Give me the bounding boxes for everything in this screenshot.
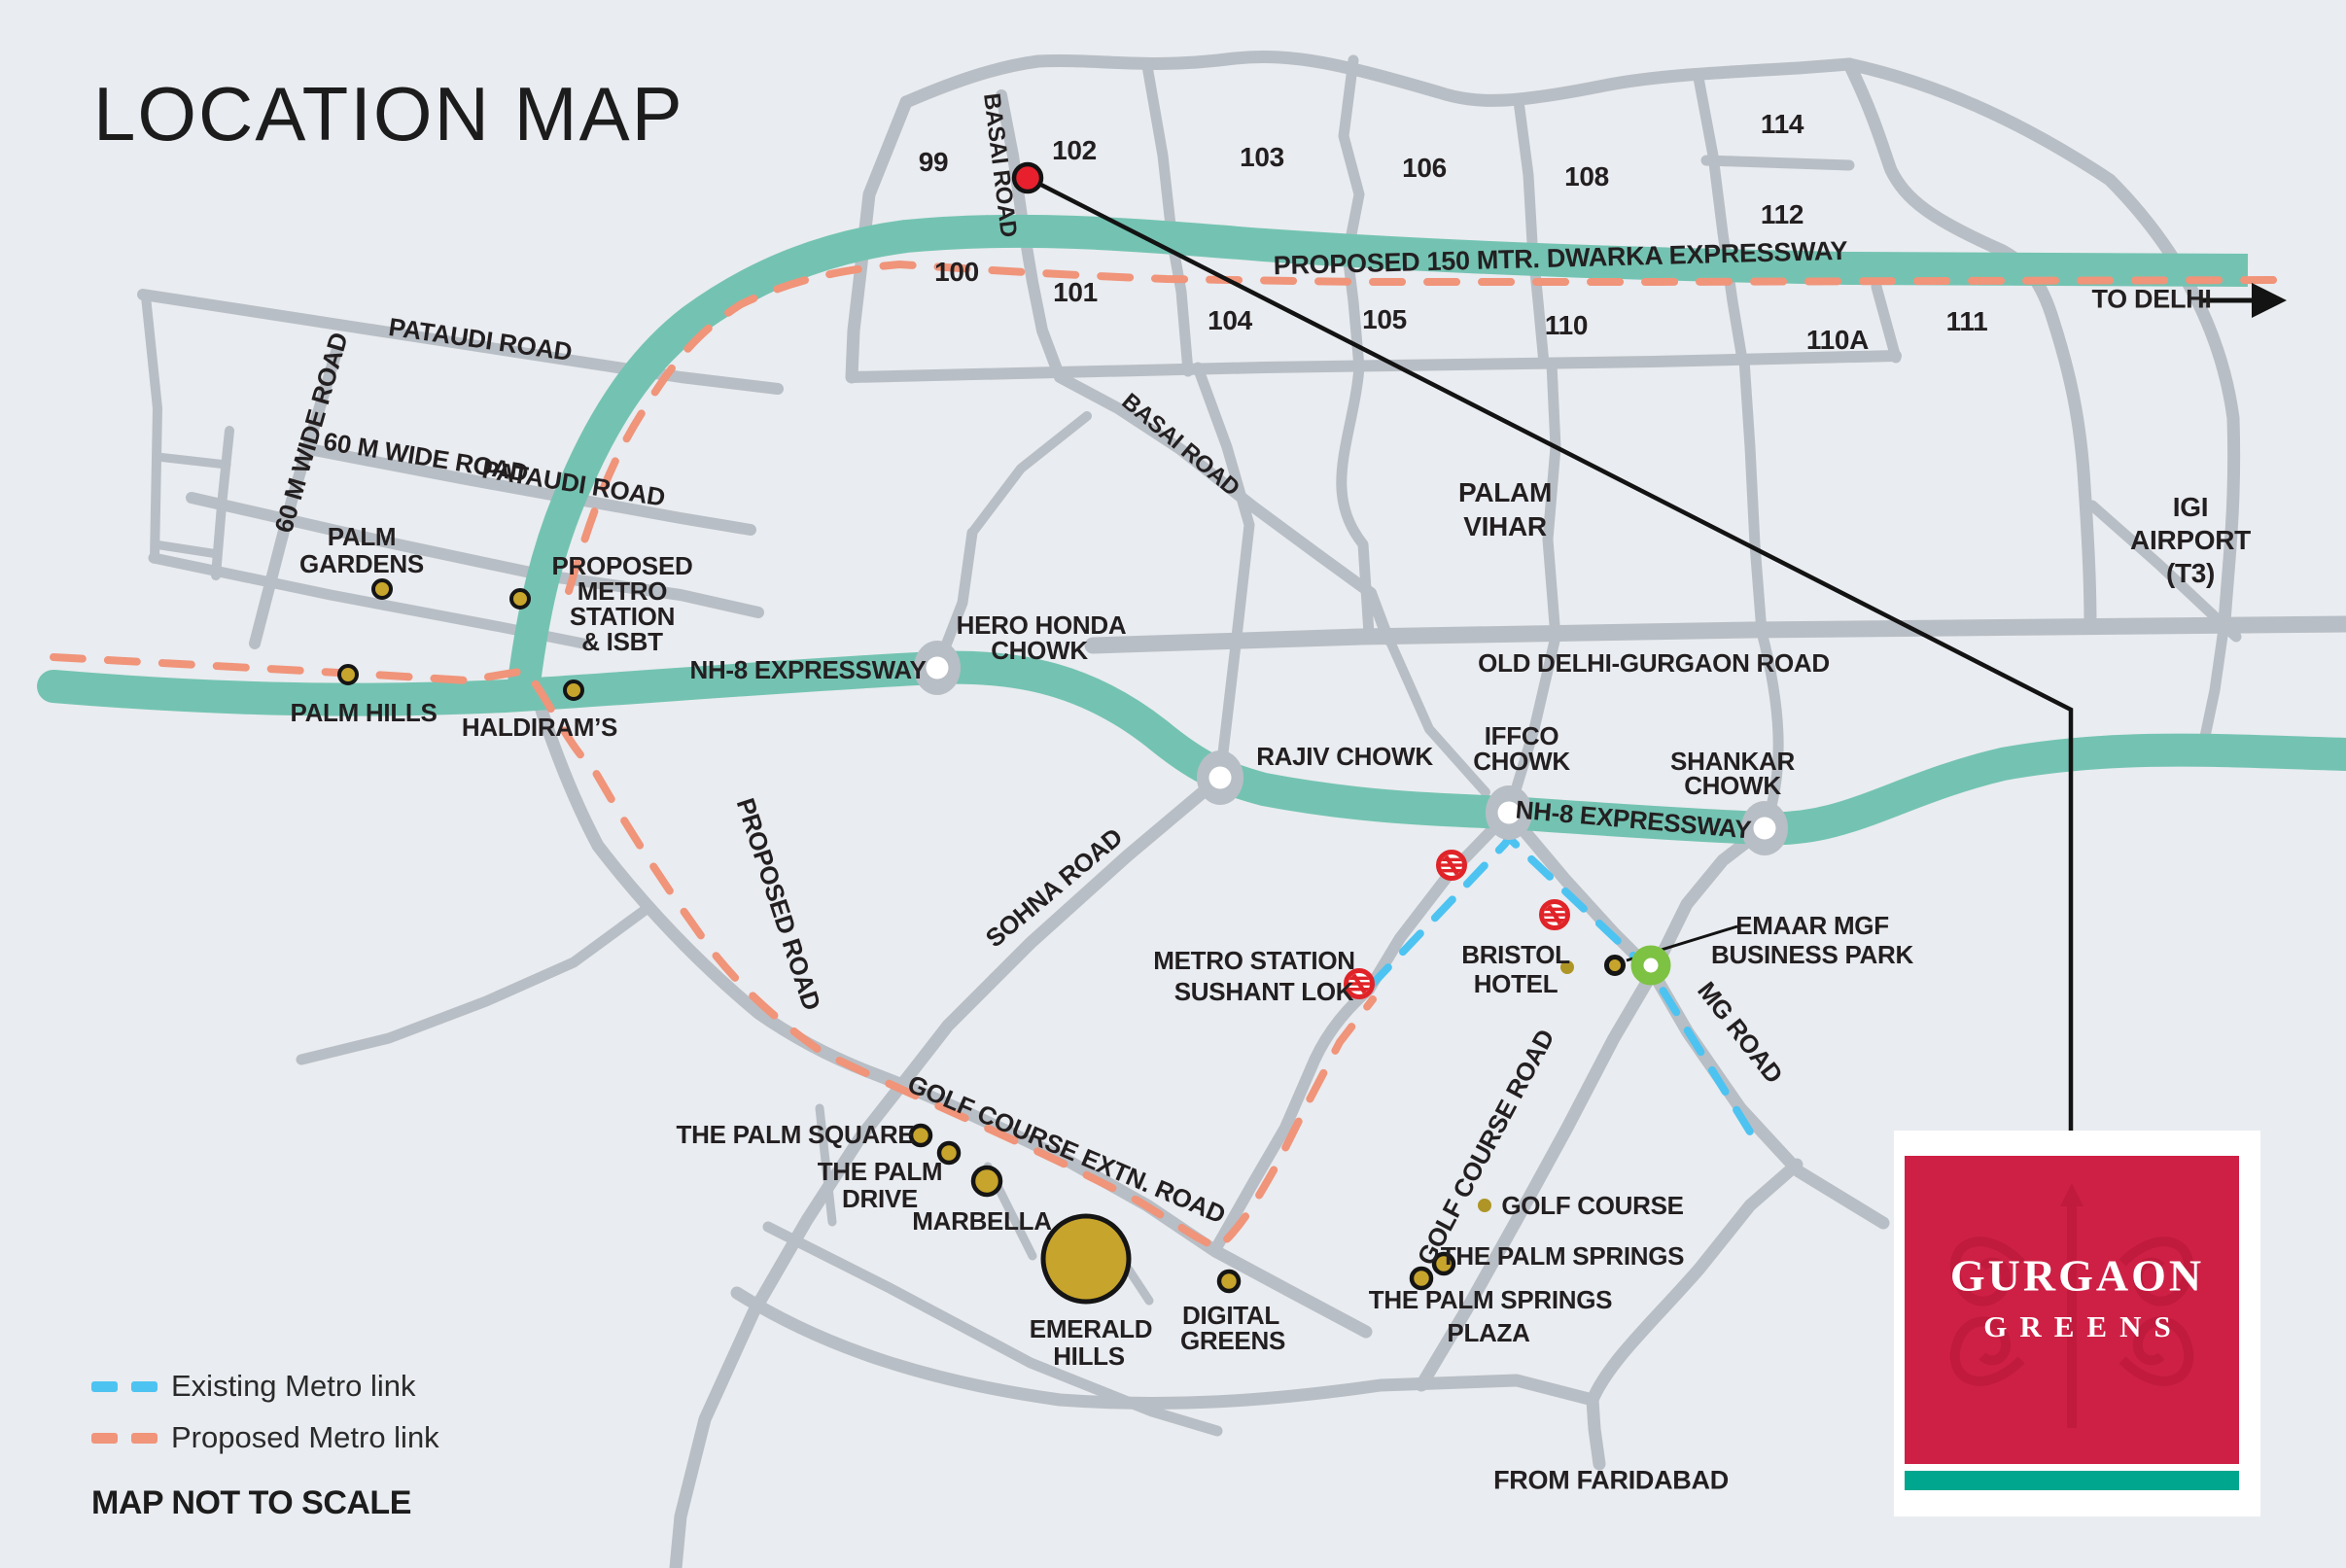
digital-greens-label-2: GREENS — [1180, 1328, 1285, 1353]
proposed-metro-dash-icon — [131, 1433, 158, 1444]
nh8-expressway-path — [53, 668, 2346, 829]
palm-drive-label-1: THE PALM — [818, 1159, 943, 1184]
sector-103: 103 — [1240, 144, 1284, 171]
palm-springs-label: THE PALM SPRINGS — [1441, 1243, 1684, 1269]
location-map: LOCATION MAP 99 100 101 102 103 104 105 … — [0, 0, 2346, 1568]
igi-airport-label-2: AIRPORT — [2130, 527, 2251, 554]
digital-greens-dot — [1219, 1272, 1239, 1291]
sector-101: 101 — [1053, 279, 1098, 306]
emaar-business-park-marker — [1607, 958, 1624, 974]
iffco-chowk-label-2: CHOWK — [1473, 749, 1570, 774]
rajiv-chowk-label: RAJIV CHOWK — [1256, 744, 1433, 769]
existing-metro-dash-icon — [91, 1381, 118, 1392]
mg-road-path — [1509, 813, 1883, 1223]
palam-vihar-label-1: PALAM — [1458, 479, 1552, 506]
metro-sushant-label-2: SUSHANT LOK — [1174, 979, 1353, 1004]
page-title: LOCATION MAP — [93, 76, 684, 152]
metro-isbt-label-4: & ISBT — [581, 629, 662, 654]
haldirams-label: HALDIRAM’S — [462, 714, 617, 740]
sector-102: 102 — [1052, 137, 1097, 164]
proposed-metro-dash-icon — [91, 1433, 118, 1444]
logo-text-line2: GREENS — [1971, 1309, 2183, 1344]
palm-drive-label-2: DRIVE — [842, 1186, 918, 1211]
to-delhi-label: TO DELHI — [2091, 287, 2211, 313]
sector-110: 110 — [1545, 312, 1588, 339]
sector-110a: 110A — [1806, 327, 1869, 354]
metro-isbt-label-3: STATION — [570, 604, 675, 629]
emerald-hills-label-2: HILLS — [1053, 1343, 1125, 1369]
bristol-hotel-label-2: HOTEL — [1474, 971, 1558, 996]
golf-course-label: GOLF COURSE — [1501, 1193, 1683, 1218]
palam-vihar-label-2: VIHAR — [1463, 513, 1547, 540]
marbella-dot — [973, 1167, 1000, 1195]
metro-station-icon-2 — [1542, 902, 1568, 928]
igi-airport-label-3: (T3) — [2166, 560, 2215, 587]
from-faridabad-label: FROM FARIDABAD — [1493, 1468, 1729, 1494]
golf-course-dot — [1478, 1199, 1491, 1212]
springs-plaza-label-2: PLAZA — [1447, 1320, 1529, 1345]
hero-honda-chowk-label-1: HERO HONDA — [957, 612, 1127, 638]
palm-gardens-label-1: PALM — [328, 524, 397, 549]
legend-existing-metro: Existing Metro link — [91, 1369, 416, 1404]
emerald-hills-dot — [1043, 1216, 1129, 1302]
emerald-hills-label-1: EMERALD — [1030, 1316, 1152, 1342]
to-delhi-arrow-icon — [2199, 283, 2287, 318]
metro-station-icon-1 — [1439, 853, 1465, 879]
site-location-marker — [1014, 164, 1041, 192]
nh8-label-west: NH-8 EXPRESSWAY — [689, 657, 926, 682]
sector-99: 99 — [919, 149, 949, 176]
palm-hills-label: PALM HILLS — [290, 700, 437, 725]
sector-104: 104 — [1208, 307, 1252, 334]
gurgaon-greens-logo: GURGAON GREENS — [1894, 1131, 2260, 1516]
iffco-chowk-label-1: IFFCO — [1485, 723, 1559, 749]
metro-isbt-label-1: PROPOSED — [552, 553, 693, 578]
old-delhi-gurgaon-label: OLD DELHI-GURGAON ROAD — [1478, 650, 1830, 676]
sector-111: 111 — [1946, 308, 1988, 335]
rajiv-chowk-junction — [1197, 750, 1243, 805]
map-scale-note: MAP NOT TO SCALE — [91, 1484, 411, 1522]
sector-106: 106 — [1402, 155, 1447, 182]
existing-metro-dash-icon — [131, 1381, 158, 1392]
sector-112: 112 — [1761, 201, 1803, 228]
legend-existing-label: Existing Metro link — [171, 1369, 416, 1404]
logo-teal-bar — [1905, 1471, 2239, 1490]
metro-isbt-label-2: METRO — [578, 578, 667, 604]
palm-gardens-dot — [373, 580, 391, 598]
bristol-hotel-label-1: BRISTOL — [1461, 942, 1570, 967]
springs-plaza-label-1: THE PALM SPRINGS — [1369, 1287, 1612, 1312]
logo-text-line1: GURGAON — [1950, 1250, 2204, 1302]
haldirams-dot — [565, 681, 582, 699]
shankar-chowk-label-2: CHOWK — [1684, 773, 1781, 798]
palm-gardens-label-2: GARDENS — [299, 551, 424, 576]
legend-proposed-label: Proposed Metro link — [171, 1420, 439, 1455]
metro-sushant-label-1: METRO STATION — [1153, 948, 1354, 973]
palm-hills-dot — [339, 666, 357, 683]
sector-105: 105 — [1362, 306, 1407, 333]
palm-square-label: THE PALM SQUARE — [677, 1122, 915, 1147]
igi-airport-label-1: IGI — [2173, 494, 2208, 521]
sector-100: 100 — [934, 259, 979, 286]
emaar-junction-green-ring — [1637, 952, 1664, 979]
metro-isbt-dot — [511, 590, 529, 608]
old-delhi-gurgaon-road — [1093, 624, 2346, 645]
hero-honda-chowk-label-2: CHOWK — [991, 638, 1088, 663]
emaar-label-1: EMAAR MGF — [1735, 913, 1889, 938]
sector-108: 108 — [1564, 163, 1609, 191]
emaar-label-2: BUSINESS PARK — [1711, 942, 1913, 967]
marbella-label: MARBELLA — [912, 1208, 1051, 1234]
sector-114: 114 — [1761, 111, 1803, 138]
legend-proposed-metro: Proposed Metro link — [91, 1420, 439, 1455]
digital-greens-label-1: DIGITAL — [1182, 1303, 1279, 1328]
sector-top-boundary — [906, 56, 1849, 102]
